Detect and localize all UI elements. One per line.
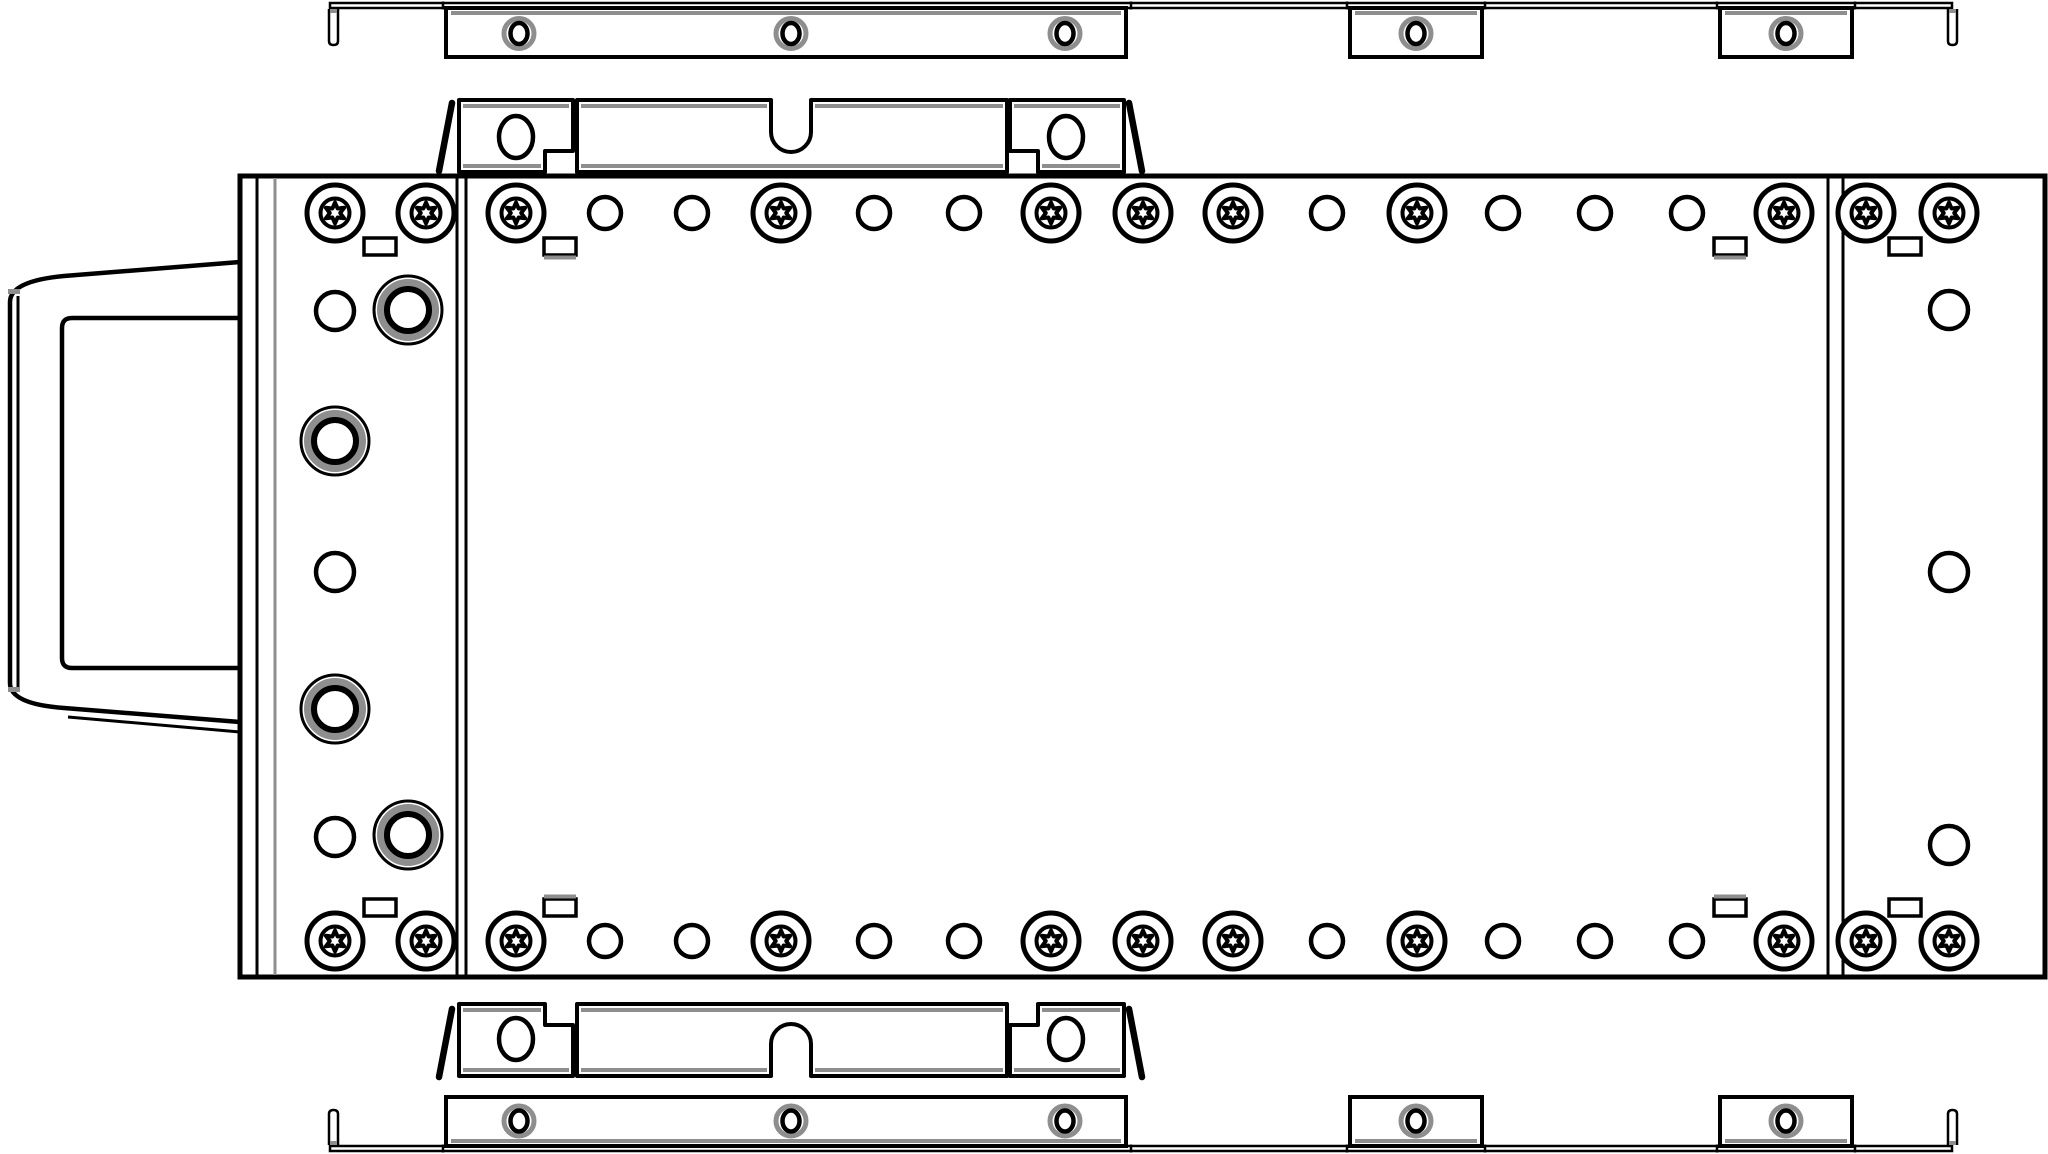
page	[0, 0, 2048, 1154]
rail-hook-cap	[1949, 1141, 1956, 1145]
bracket-spring-pin	[439, 1009, 452, 1077]
latch-slot	[544, 899, 576, 916]
mounting-hole	[316, 553, 354, 591]
latch-slot	[364, 238, 396, 255]
rail-end-hook	[1948, 1110, 1957, 1145]
bottom-rail	[329, 1097, 1957, 1153]
front-bezel	[8, 262, 240, 732]
rivet-hole	[676, 925, 708, 957]
mounting-hole	[1930, 291, 1968, 329]
rail-grommet-hole	[1778, 1111, 1795, 1132]
rail-hook-cap	[330, 9, 337, 13]
torx-screw	[1389, 185, 1445, 241]
bracket-main-span	[577, 1004, 1007, 1076]
bezel-edge-tick	[8, 289, 20, 294]
rail-hook-cap	[1949, 9, 1956, 13]
torx-screw	[1115, 913, 1171, 969]
rail-grommet-hole	[1057, 23, 1074, 44]
rivet-hole	[1671, 197, 1703, 229]
rail-grommet-hole	[783, 23, 800, 44]
torx-screw	[1921, 185, 1977, 241]
latch-slot	[1714, 238, 1746, 255]
grommet	[374, 801, 442, 869]
torx-screw	[307, 913, 363, 969]
rivet-hole	[1579, 925, 1611, 957]
torx-screw	[1756, 185, 1812, 241]
top-bracket	[459, 100, 1124, 172]
rail-grommet-hole	[1057, 1111, 1074, 1132]
latch-slot	[544, 238, 576, 255]
top-rail	[329, 2, 1957, 58]
torx-screw	[1205, 913, 1261, 969]
bezel-edge-tick	[8, 687, 20, 692]
torx-screw	[1389, 913, 1445, 969]
rivet-hole	[1311, 925, 1343, 957]
rail-grommet-hole	[511, 1111, 528, 1132]
bracket-screw-hole	[1049, 116, 1083, 158]
rivet-hole	[858, 197, 890, 229]
rivet-hole	[589, 925, 621, 957]
rivet-hole	[1311, 197, 1343, 229]
torx-screw	[753, 185, 809, 241]
latch-slot	[1714, 899, 1746, 916]
bracket-spring-pin	[1129, 1009, 1142, 1077]
latch-slot	[1889, 238, 1921, 255]
grommet-bore	[387, 814, 429, 856]
torx-screw	[398, 185, 454, 241]
chassis	[240, 176, 2045, 977]
torx-screw	[1115, 185, 1171, 241]
rivet-hole	[858, 925, 890, 957]
rivet-hole	[589, 197, 621, 229]
grommet-bore	[314, 688, 356, 730]
rail-hook-cap	[330, 1141, 337, 1145]
torx-screw	[1838, 913, 1894, 969]
latch-slot	[364, 899, 396, 916]
bracket-screw-hole	[499, 1018, 533, 1060]
mounting-hole	[316, 292, 354, 330]
torx-screw	[1023, 913, 1079, 969]
rail-end-hook	[329, 9, 338, 45]
rail-grommet-hole	[1408, 1111, 1425, 1132]
rivet-hole	[1487, 197, 1519, 229]
rail-grommet-hole	[1408, 23, 1425, 44]
torx-screw	[1921, 913, 1977, 969]
grommet	[301, 407, 369, 475]
grommet-bore	[314, 420, 356, 462]
mounting-hole	[1930, 826, 1968, 864]
technical-drawing-canvas	[0, 0, 2048, 1154]
chassis-plate	[240, 176, 2045, 977]
bracket-spring-pin	[439, 103, 452, 171]
torx-screw	[1838, 185, 1894, 241]
rail-grommet-hole	[1778, 23, 1795, 44]
rail-end-hook	[329, 1110, 338, 1145]
bottom-bracket	[459, 1004, 1124, 1076]
mounting-hole	[316, 818, 354, 856]
rail-grommet-hole	[511, 23, 528, 44]
torx-screw	[753, 913, 809, 969]
bracket-main-span	[577, 100, 1007, 172]
grommet-bore	[387, 289, 429, 331]
rivet-hole	[676, 197, 708, 229]
bracket-screw-hole	[499, 116, 533, 158]
torx-screw	[1205, 185, 1261, 241]
rivet-hole	[948, 197, 980, 229]
rivet-hole	[1487, 925, 1519, 957]
mounting-hole	[1930, 553, 1968, 591]
rivet-hole	[1579, 197, 1611, 229]
torx-screw	[488, 913, 544, 969]
exploded-assembly-diagram	[0, 0, 2048, 1154]
torx-screw	[307, 185, 363, 241]
bracket-spring-pin	[1129, 103, 1142, 171]
grommet	[374, 276, 442, 344]
torx-screw	[1023, 185, 1079, 241]
bracket-screw-hole	[1049, 1018, 1083, 1060]
latch-slot	[1889, 899, 1921, 916]
rivet-hole	[948, 925, 980, 957]
torx-screw	[488, 185, 544, 241]
rail-grommet-hole	[783, 1111, 800, 1132]
rivet-hole	[1671, 925, 1703, 957]
bezel-recess	[62, 318, 240, 668]
torx-screw	[1756, 913, 1812, 969]
torx-screw	[398, 913, 454, 969]
rail-end-hook	[1948, 9, 1957, 45]
grommet	[301, 675, 369, 743]
